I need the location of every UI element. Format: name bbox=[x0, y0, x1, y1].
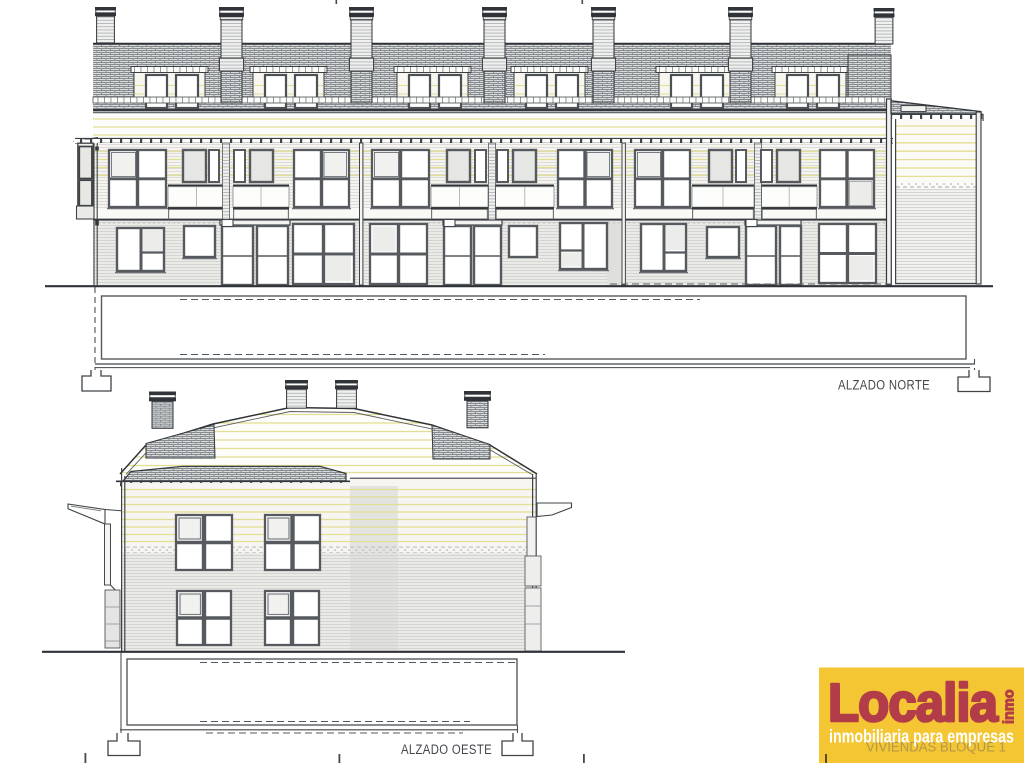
svg-text:ALZADO OESTE: ALZADO OESTE bbox=[401, 742, 492, 757]
svg-text:ALZADO NORTE: ALZADO NORTE bbox=[838, 378, 930, 393]
svg-text:inmobiliaria para empresas: inmobiliaria para empresas bbox=[829, 727, 1014, 747]
svg-text:Localia: Localia bbox=[828, 673, 999, 733]
svg-text:inmo: inmo bbox=[1002, 689, 1018, 724]
